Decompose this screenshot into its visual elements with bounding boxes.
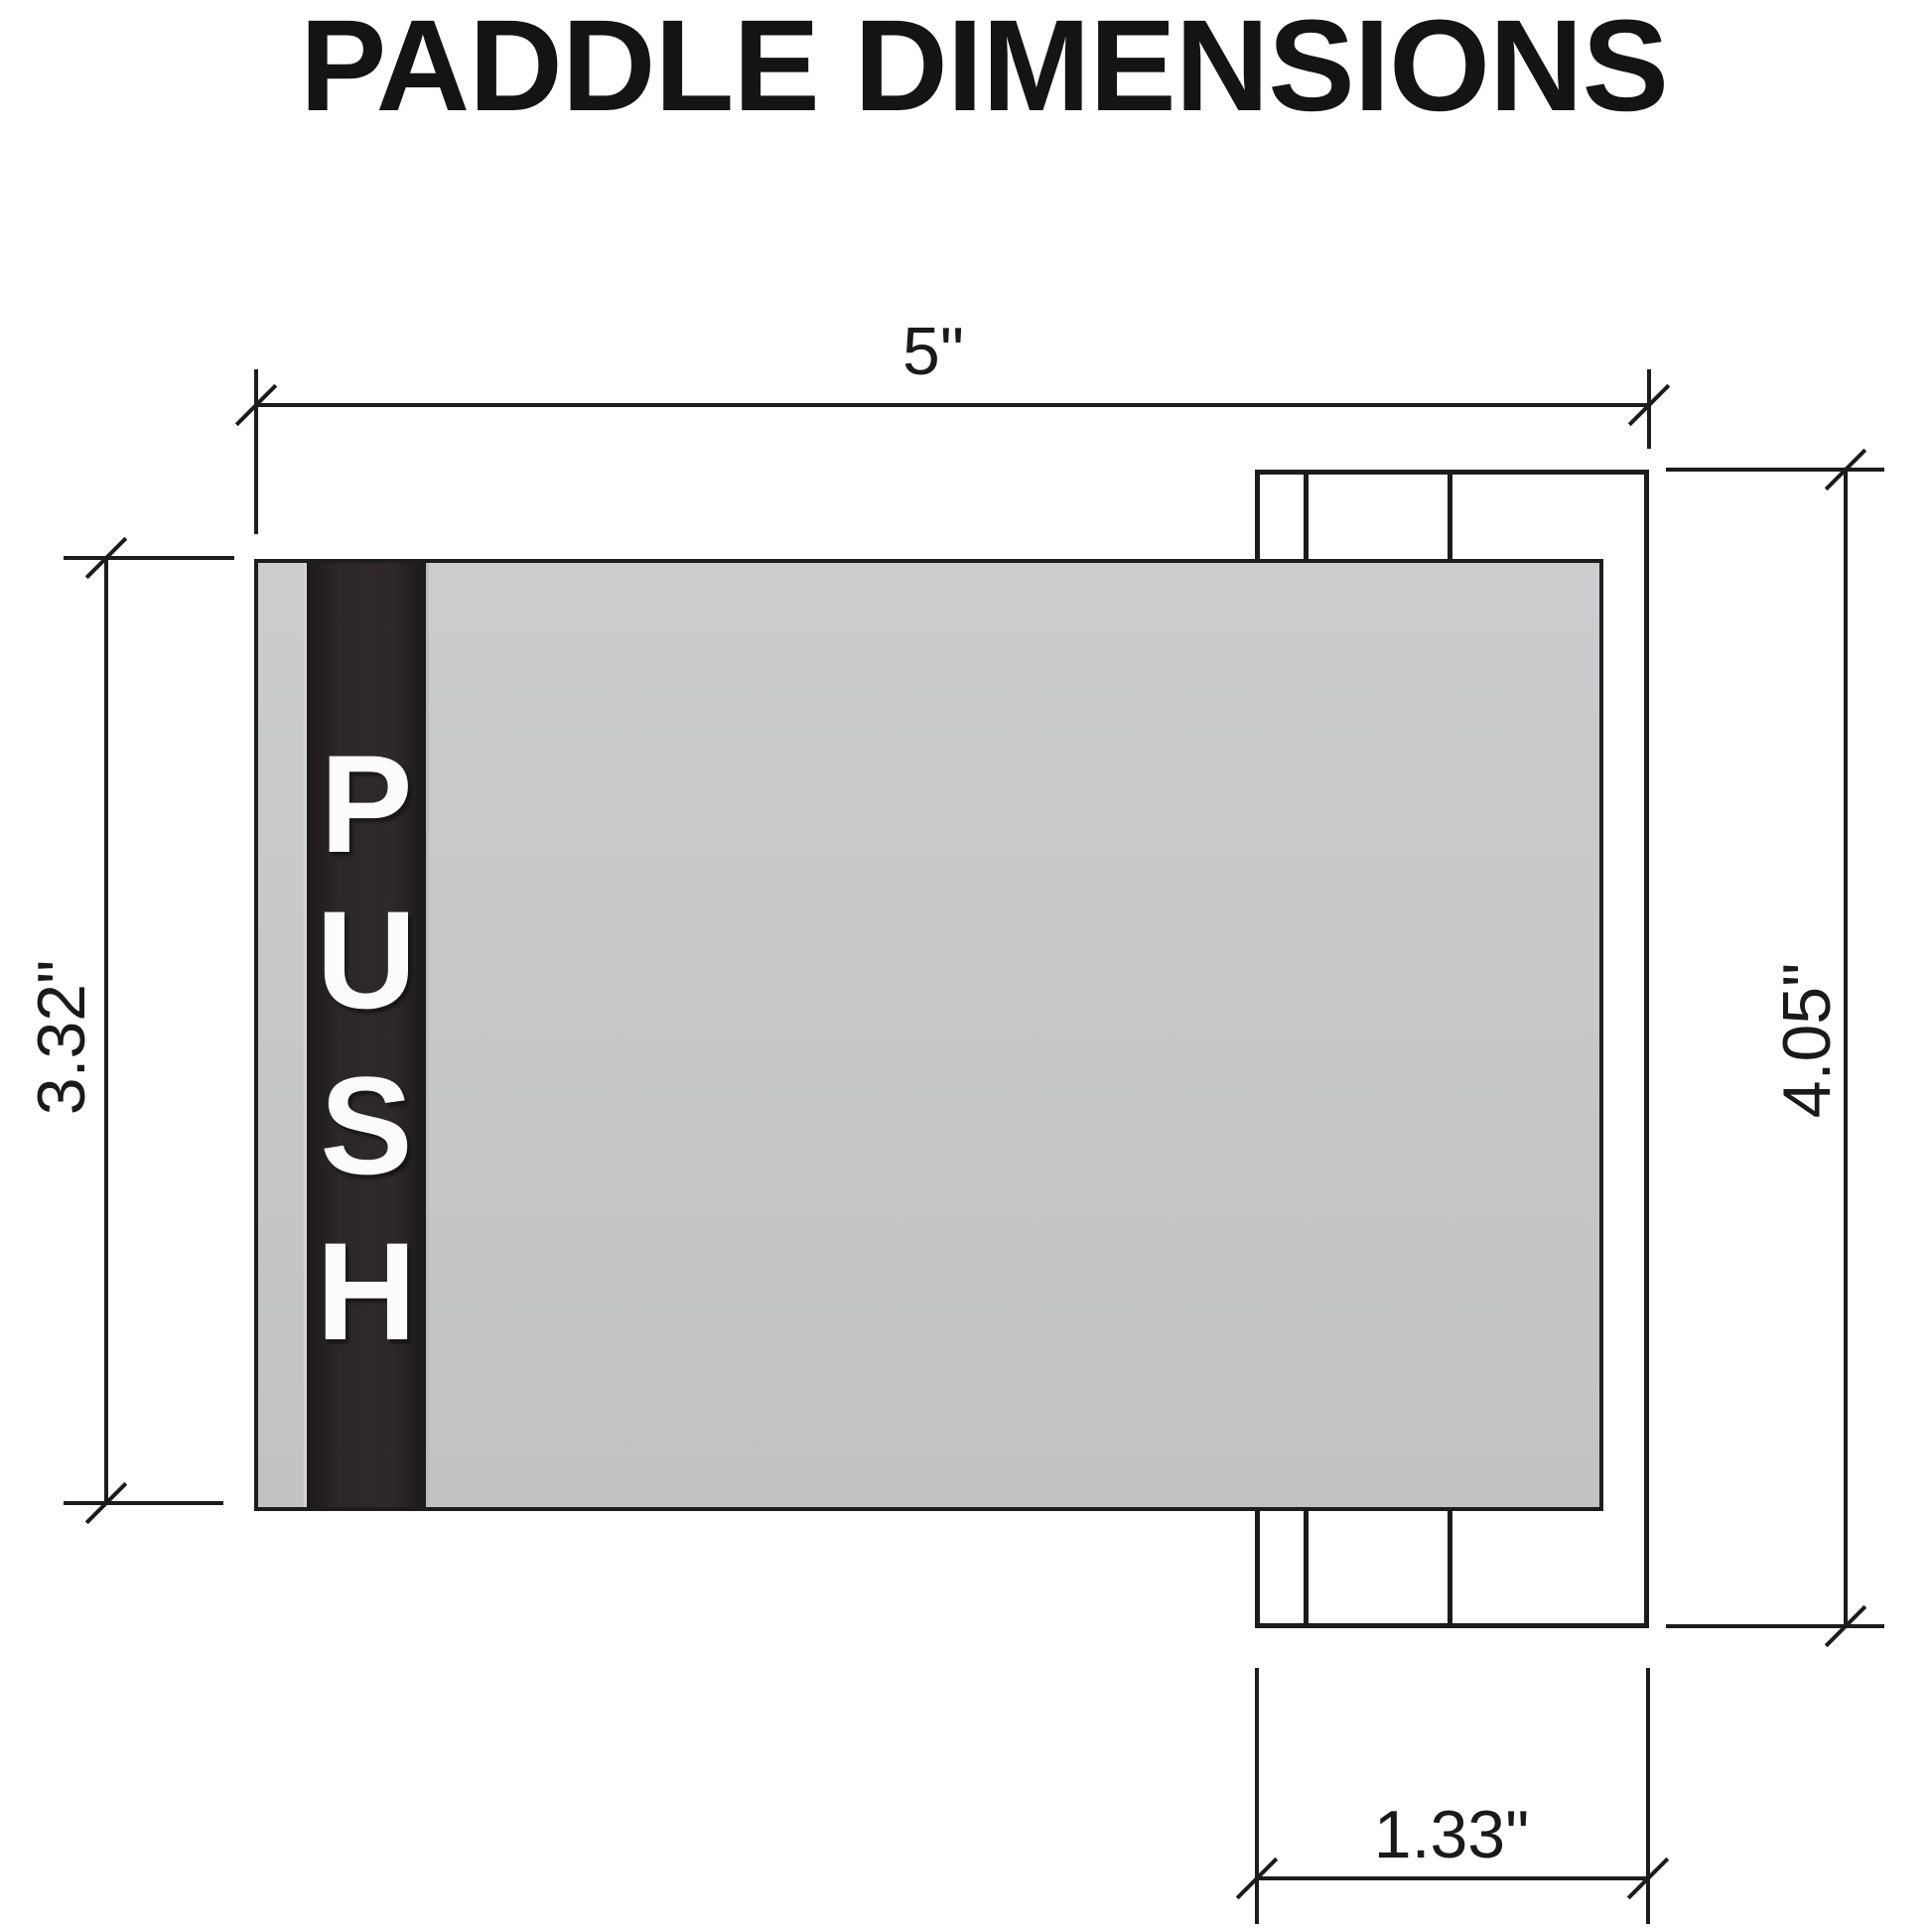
dimension-bracket-width: 1.33"	[0, 0, 1932, 1932]
paddle-dimensions-diagram: PADDLE DIMENSIONS P U S H 5" 3.32"	[0, 0, 1932, 1932]
dim-label-bracket-width: 1.33"	[1352, 1795, 1551, 1874]
ext-line	[1255, 1668, 1259, 1924]
dim-line	[1257, 1876, 1648, 1880]
ext-line	[1646, 1668, 1650, 1924]
